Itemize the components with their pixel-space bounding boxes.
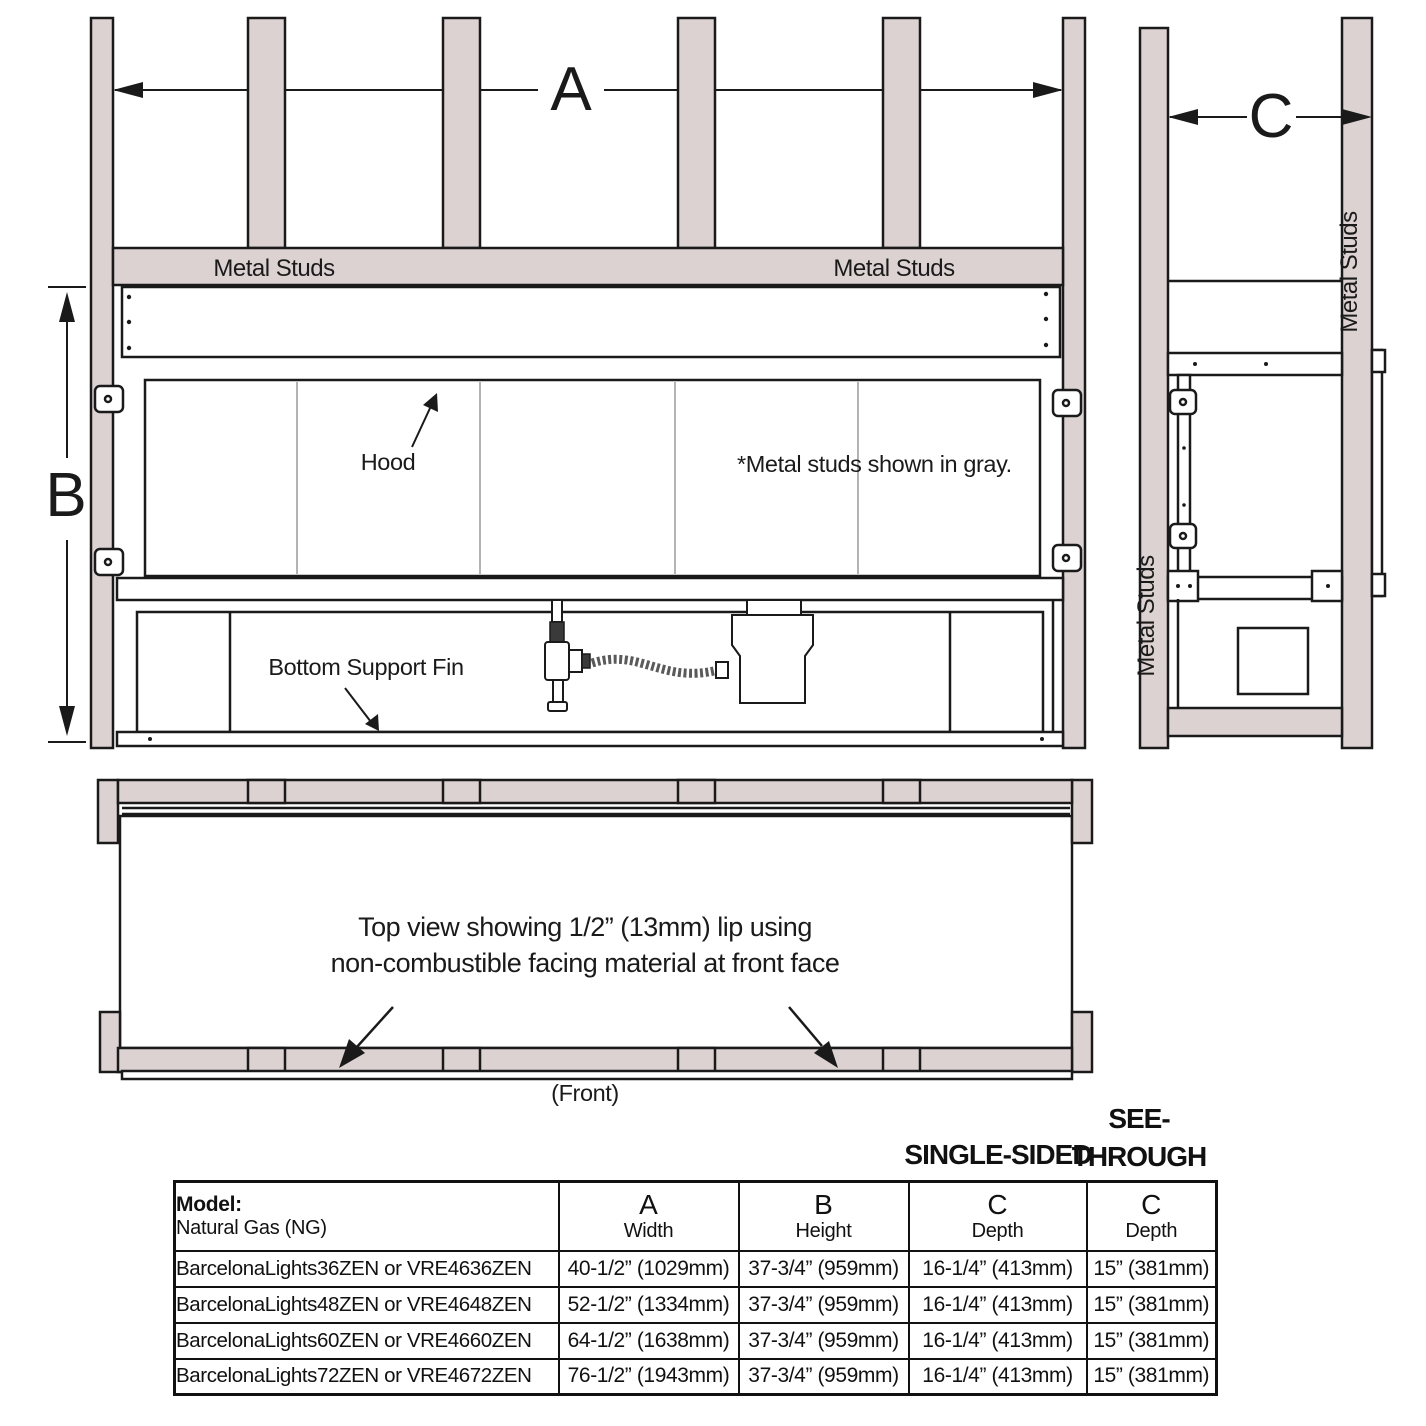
depth-seethrough-cell: 15” (381mm) — [1087, 1287, 1217, 1323]
depth-seethrough-cell: 15” (381mm) — [1087, 1359, 1217, 1395]
dim-b-label: B — [45, 461, 86, 530]
model-cell: BarcelonaLights48ZEN or VRE4648ZEN — [175, 1287, 559, 1323]
see-through-heading: SEE- THROUGH — [1064, 1100, 1214, 1176]
depth-single-cell: 16-1/4” (413mm) — [909, 1359, 1087, 1395]
width-cell: 40-1/2” (1029mm) — [559, 1251, 739, 1287]
width-cell: 76-1/2” (1943mm) — [559, 1359, 739, 1395]
top-view-caption-line2: non-combustible facing material at front… — [331, 948, 840, 978]
junction-box — [1238, 628, 1308, 694]
hose-connector — [716, 662, 728, 678]
hood-panel — [145, 380, 1040, 576]
stud-left — [91, 18, 113, 748]
pipe-cap — [548, 702, 567, 711]
side-view: C Metal Studs Metal Studs — [1133, 18, 1385, 748]
gray-note: *Metal studs shown in gray. — [737, 451, 1012, 477]
see-through-line1: SEE- — [1064, 1100, 1214, 1138]
col-header-c-depth-single: C Depth — [909, 1182, 1087, 1251]
arrowhead-up — [59, 292, 75, 322]
col-header-b-height: B Height — [739, 1182, 909, 1251]
fireplace-front: Hood *Metal studs shown in gray. Bottom … — [95, 287, 1081, 746]
gas-valve-box — [732, 615, 813, 703]
col-header-a-width: A Width — [559, 1182, 739, 1251]
arrowhead-left — [1168, 109, 1198, 125]
bottom-track — [1168, 708, 1342, 736]
front-label: (Front) — [551, 1080, 619, 1106]
bottom-support-fin — [117, 732, 1063, 746]
stud-top-1 — [248, 18, 285, 248]
height-cell: 37-3/4” (959mm) — [739, 1323, 909, 1359]
dim-c-label: C — [1249, 82, 1294, 151]
depth-seethrough-cell: 15” (381mm) — [1087, 1251, 1217, 1287]
stud-top-3 — [678, 18, 715, 248]
model-cell: BarcelonaLights60ZEN or VRE4660ZEN — [175, 1323, 559, 1359]
height-cell: 37-3/4” (959mm) — [739, 1359, 909, 1395]
dimensions-table: Model: Natural Gas (NG) A Width B Height… — [173, 1180, 1218, 1396]
table-row: BarcelonaLights60ZEN or VRE4660ZEN 64-1/… — [175, 1323, 1217, 1359]
table-row: BarcelonaLights48ZEN or VRE4648ZEN 52-1/… — [175, 1287, 1217, 1323]
top-view: Top view showing 1/2” (13mm) lip using n… — [98, 780, 1092, 1106]
arrowhead-right — [1033, 82, 1063, 98]
depth-single-cell: 16-1/4” (413mm) — [909, 1287, 1087, 1323]
facing-lip-cap-top — [1372, 350, 1385, 372]
depth-single-cell: 16-1/4” (413mm) — [909, 1323, 1087, 1359]
col-header-model: Model: Natural Gas (NG) — [175, 1182, 559, 1251]
table-header-row: Model: Natural Gas (NG) A Width B Height… — [175, 1182, 1217, 1251]
stud-top-2 — [443, 18, 480, 248]
hood-label: Hood — [361, 449, 416, 475]
arrowhead-down — [59, 706, 75, 736]
depth-seethrough-cell: 15” (381mm) — [1087, 1323, 1217, 1359]
rail-end-plate-left — [1168, 571, 1198, 601]
model-cell: BarcelonaLights36ZEN or VRE4636ZEN — [175, 1251, 559, 1287]
model-cell: BarcelonaLights72ZEN or VRE4672ZEN — [175, 1359, 559, 1395]
front-view: A Metal Studs Metal Studs B — [45, 18, 1085, 748]
metal-studs-label-left: Metal Studs — [1133, 555, 1160, 677]
facing-lip-strip — [1372, 350, 1382, 596]
installation-diagram-page: A Metal Studs Metal Studs B — [0, 0, 1426, 1426]
top-view-caption-line1: Top view showing 1/2” (13mm) lip using — [358, 912, 812, 942]
branch-threads — [582, 654, 590, 668]
tee-fitting — [545, 642, 569, 680]
stud-top-4 — [883, 18, 920, 248]
front-lip — [122, 1071, 1072, 1079]
bottom-support-fin-label: Bottom Support Fin — [268, 654, 463, 680]
metal-studs-label-right: Metal Studs — [1336, 211, 1363, 333]
depth-single-cell: 16-1/4” (413mm) — [909, 1251, 1087, 1287]
stud-right — [1342, 18, 1372, 748]
width-cell: 64-1/2” (1638mm) — [559, 1323, 739, 1359]
fitting-nut — [569, 650, 582, 672]
metal-studs-label-right: Metal Studs — [833, 255, 955, 282]
pipe-stub — [553, 680, 563, 704]
corner-stud-top-left — [98, 780, 118, 843]
framing-diagram: A Metal Studs Metal Studs B — [0, 0, 1426, 1160]
corner-stud-bottom-right — [1072, 1012, 1092, 1072]
arrowhead-left — [113, 82, 143, 98]
col-header-c-depth-seethrough: C Depth — [1087, 1182, 1217, 1251]
corner-stud-top-right — [1072, 780, 1092, 843]
model-title: Model: — [176, 1193, 558, 1217]
see-through-line2: THROUGH — [1064, 1138, 1214, 1176]
table-row: BarcelonaLights72ZEN or VRE4672ZEN 76-1/… — [175, 1359, 1217, 1395]
valve-tab — [747, 600, 801, 615]
stud-right — [1063, 18, 1085, 748]
width-cell: 52-1/2” (1334mm) — [559, 1287, 739, 1323]
dim-a-label: A — [550, 55, 592, 124]
height-cell: 37-3/4” (959mm) — [739, 1287, 909, 1323]
table-row: BarcelonaLights36ZEN or VRE4636ZEN 40-1/… — [175, 1251, 1217, 1287]
top-frame — [122, 287, 1060, 357]
pipe-threads — [550, 622, 564, 642]
model-subtitle: Natural Gas (NG) — [176, 1217, 558, 1240]
dimension-b: B — [45, 287, 86, 742]
metal-studs-label-left: Metal Studs — [213, 255, 335, 282]
burner-deck — [117, 578, 1063, 600]
height-cell: 37-3/4” (959mm) — [739, 1251, 909, 1287]
facing-lip-cap-bottom — [1372, 574, 1385, 596]
gas-pipe — [552, 600, 562, 622]
